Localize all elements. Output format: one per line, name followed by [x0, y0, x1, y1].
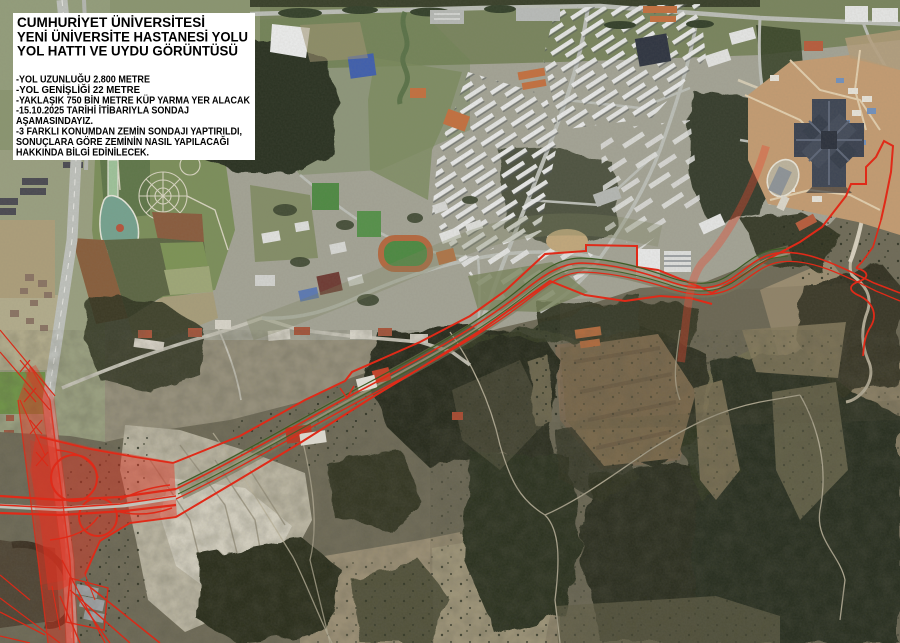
svg-text:-YAKLAŞIK 750 BİN METRE KÜP YA: -YAKLAŞIK 750 BİN METRE KÜP YARMA YER AL… — [16, 93, 251, 106]
svg-text:SONUÇLARA GÖRE ZEMİNİN NASIL Y: SONUÇLARA GÖRE ZEMİNİN NASIL YAPILACAĞI — [16, 135, 229, 148]
svg-text:AŞAMASINDAYIZ.: AŞAMASINDAYIZ. — [16, 116, 93, 127]
svg-text:-15.10.2025 TARİHİ İTİBARIYLA: -15.10.2025 TARİHİ İTİBARIYLA SONDAJ — [16, 104, 189, 117]
svg-text:-YOL GENİŞLİĞİ 22 METRE: -YOL GENİŞLİĞİ 22 METRE — [16, 83, 140, 96]
svg-text:HAKKINDA BİLGİ EDİNİLECEK.: HAKKINDA BİLGİ EDİNİLECEK. — [16, 145, 149, 158]
svg-text:-YOL UZUNLUĞU 2.800 METRE: -YOL UZUNLUĞU 2.800 METRE — [16, 73, 150, 86]
svg-text:YOL HATTI VE UYDU GÖRÜNTÜSÜ: YOL HATTI VE UYDU GÖRÜNTÜSÜ — [17, 43, 238, 60]
svg-text:-3 FARKLI KONUMDAN ZEMİN SONDA: -3 FARKLI KONUMDAN ZEMİN SONDAJI YAPTIRI… — [16, 125, 242, 138]
